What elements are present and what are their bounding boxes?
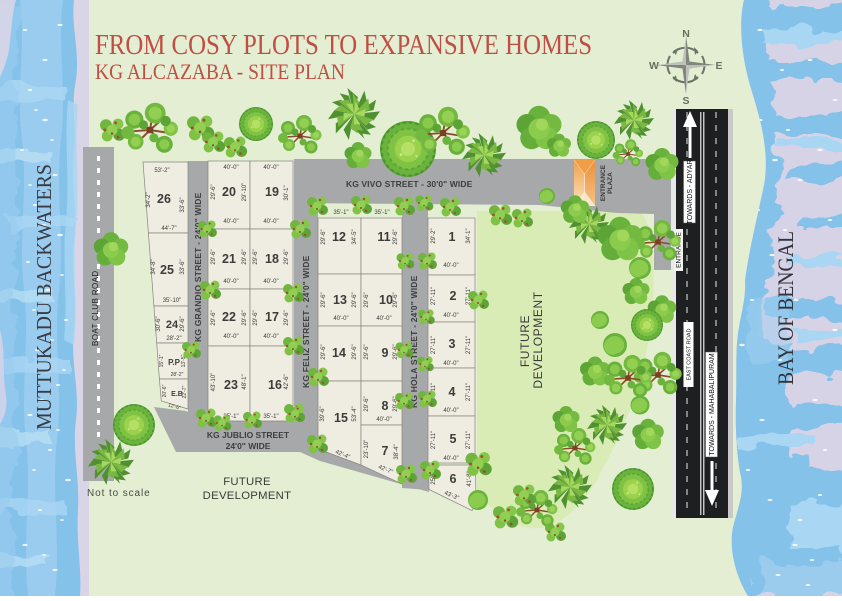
svg-text:15'-1": 15'-1"	[159, 354, 165, 367]
svg-text:P.P: P.P	[168, 358, 181, 367]
svg-text:21: 21	[222, 252, 236, 266]
svg-text:25: 25	[160, 263, 174, 277]
svg-text:44'-7": 44'-7"	[161, 226, 176, 232]
svg-text:40'-0": 40'-0"	[263, 334, 278, 340]
svg-text:29'-6": 29'-6"	[253, 310, 259, 325]
svg-text:40'-0": 40'-0"	[443, 361, 458, 367]
svg-text:2: 2	[450, 289, 457, 303]
svg-text:43'-10": 43'-10"	[211, 373, 217, 392]
svg-text:40'-0": 40'-0"	[443, 456, 458, 462]
svg-text:53'-4": 53'-4"	[352, 406, 358, 421]
svg-text:KG ALCAZABA - SITE PLAN: KG ALCAZABA - SITE PLAN	[95, 59, 345, 84]
svg-text:10: 10	[379, 293, 393, 307]
svg-text:KG HOLA STREET - 24'0" WIDE: KG HOLA STREET - 24'0" WIDE	[409, 275, 419, 408]
svg-text:8: 8	[382, 399, 389, 413]
svg-text:28'-2": 28'-2"	[171, 372, 184, 378]
svg-text:N: N	[682, 28, 690, 40]
svg-text:3: 3	[449, 337, 456, 351]
svg-text:FROM COSY PLOTS TO EXPANSIVE H: FROM COSY PLOTS TO EXPANSIVE HOMES	[95, 29, 592, 61]
svg-text:29'-6": 29'-6"	[284, 249, 290, 264]
svg-text:E: E	[715, 60, 722, 72]
svg-text:28'-2": 28'-2"	[166, 336, 181, 342]
svg-text:13: 13	[333, 293, 347, 307]
svg-text:29'-6": 29'-6"	[180, 316, 186, 331]
svg-text:7: 7	[382, 444, 389, 458]
svg-text:23: 23	[224, 378, 238, 392]
svg-text:27'-11": 27'-11"	[431, 336, 437, 354]
svg-text:29'-6": 29'-6"	[393, 292, 399, 307]
svg-text:29'-6": 29'-6"	[321, 229, 327, 244]
svg-text:1: 1	[449, 230, 456, 244]
svg-text:40'-0": 40'-0"	[376, 417, 391, 423]
svg-text:4: 4	[449, 385, 456, 399]
svg-text:29'-6": 29'-6"	[253, 249, 259, 264]
svg-text:35'-10": 35'-10"	[163, 298, 182, 304]
svg-text:ENTRANCE: ENTRANCE	[600, 164, 607, 201]
svg-text:12: 12	[332, 230, 346, 244]
svg-text:40'-0": 40'-0"	[443, 408, 458, 414]
svg-text:W: W	[649, 60, 659, 72]
svg-text:29'-6": 29'-6"	[364, 344, 370, 359]
svg-text:15: 15	[334, 411, 348, 425]
svg-text:35'-1": 35'-1"	[263, 414, 278, 420]
svg-text:30'-6": 30'-6"	[156, 316, 162, 331]
svg-text:20'-6": 20'-6"	[162, 384, 168, 397]
svg-text:40'-0": 40'-0"	[263, 219, 278, 225]
svg-text:29'-6": 29'-6"	[352, 344, 358, 359]
svg-text:34'-8": 34'-8"	[151, 259, 157, 274]
svg-text:35'-1": 35'-1"	[374, 210, 389, 216]
svg-text:5: 5	[450, 432, 457, 446]
svg-text:27'-11": 27'-11"	[466, 431, 472, 449]
svg-text:40'-0": 40'-0"	[443, 313, 458, 319]
svg-text:35'-1": 35'-1"	[333, 210, 348, 216]
svg-text:40'-0": 40'-0"	[223, 219, 238, 225]
svg-text:42'-6": 42'-6"	[284, 374, 290, 389]
svg-text:30'-1": 30'-1"	[284, 185, 290, 200]
svg-text:29'-6": 29'-6"	[364, 396, 370, 411]
svg-text:29'-6": 29'-6"	[211, 184, 217, 199]
svg-text:16: 16	[268, 378, 282, 392]
svg-text:29'-6": 29'-6"	[211, 310, 217, 325]
svg-text:29'-6": 29'-6"	[284, 310, 290, 325]
svg-text:27'-11": 27'-11"	[431, 287, 437, 305]
svg-text:23'-10": 23'-10"	[364, 440, 370, 459]
svg-text:29'-6": 29'-6"	[211, 249, 217, 264]
svg-text:FUTURE: FUTURE	[518, 315, 532, 367]
svg-text:34'-2": 34'-2"	[146, 192, 152, 207]
svg-text:40'-0": 40'-0"	[263, 165, 278, 171]
svg-text:40'-0": 40'-0"	[263, 279, 278, 285]
svg-text:MUTTUKADU BACKWATERS: MUTTUKADU BACKWATERS	[32, 164, 56, 430]
svg-text:29'-10": 29'-10"	[242, 183, 248, 202]
svg-text:39'-6": 39'-6"	[320, 406, 326, 421]
svg-text:18: 18	[265, 252, 279, 266]
svg-text:40'-0": 40'-0"	[443, 263, 458, 269]
svg-text:17: 17	[265, 310, 279, 324]
svg-text:29'-6": 29'-6"	[352, 292, 358, 307]
svg-text:TOWARDS - ADYAR: TOWARDS - ADYAR	[687, 160, 694, 225]
svg-text:EAST COAST ROAD: EAST COAST ROAD	[687, 328, 693, 380]
svg-text:14: 14	[332, 346, 346, 360]
svg-text:27'-11": 27'-11"	[466, 383, 472, 401]
svg-text:S: S	[682, 95, 689, 107]
svg-text:TOWARDS - MAHABALIPURAM: TOWARDS - MAHABALIPURAM	[709, 353, 716, 455]
svg-text:19: 19	[265, 185, 279, 199]
svg-text:Not to scale: Not to scale	[87, 488, 151, 499]
svg-text:KG JUBLIO STREET: KG JUBLIO STREET	[207, 430, 290, 440]
svg-text:KG VIVO STREET - 30'0" WIDE: KG VIVO STREET - 30'0" WIDE	[346, 179, 473, 189]
svg-text:20: 20	[222, 185, 236, 199]
svg-text:24: 24	[166, 319, 179, 331]
svg-text:11: 11	[377, 230, 390, 244]
svg-text:BOAT CLUB ROAD: BOAT CLUB ROAD	[91, 270, 100, 346]
svg-text:29'-6": 29'-6"	[364, 292, 370, 307]
svg-text:26: 26	[157, 192, 171, 206]
svg-text:29'-2": 29'-2"	[431, 228, 437, 243]
svg-text:33'-6": 33'-6"	[180, 259, 186, 274]
svg-text:40'-0": 40'-0"	[223, 165, 238, 171]
svg-text:38'-4": 38'-4"	[394, 444, 400, 459]
svg-text:40'-0": 40'-0"	[333, 316, 348, 322]
svg-text:29'-6": 29'-6"	[321, 344, 327, 359]
svg-text:9: 9	[382, 346, 389, 360]
svg-text:34'-5": 34'-5"	[352, 229, 358, 244]
svg-text:27'-11": 27'-11"	[466, 336, 472, 354]
svg-text:29'-6": 29'-6"	[242, 249, 248, 264]
svg-text:29'-6": 29'-6"	[321, 292, 327, 307]
svg-text:DEVELOPMENT: DEVELOPMENT	[203, 490, 292, 502]
svg-text:KG GRANDIO STREET - 24'0" WIDE: KG GRANDIO STREET - 24'0" WIDE	[193, 192, 203, 342]
svg-text:40'-0": 40'-0"	[376, 316, 391, 322]
svg-text:22: 22	[222, 310, 236, 324]
svg-text:48'-1": 48'-1"	[242, 374, 248, 389]
svg-text:40'-0": 40'-0"	[223, 279, 238, 285]
svg-text:DEVELOPMENT: DEVELOPMENT	[531, 291, 545, 388]
svg-text:29'-6": 29'-6"	[393, 229, 399, 244]
svg-text:KG FELIZ STREET - 24'0" WIDE: KG FELIZ STREET - 24'0" WIDE	[301, 255, 311, 388]
svg-text:22'-7": 22'-7"	[182, 385, 188, 398]
svg-text:6: 6	[450, 472, 457, 486]
svg-text:40'-0": 40'-0"	[223, 334, 238, 340]
svg-text:53'-2": 53'-2"	[154, 168, 169, 174]
svg-text:34'-1": 34'-1"	[466, 228, 472, 243]
svg-text:BAY OF BENGAL: BAY OF BENGAL	[773, 231, 798, 385]
svg-text:PLAZA: PLAZA	[607, 172, 614, 194]
svg-text:27'-11": 27'-11"	[431, 431, 437, 449]
svg-text:24'0" WIDE: 24'0" WIDE	[226, 441, 271, 451]
svg-text:FUTURE: FUTURE	[223, 476, 271, 488]
svg-text:29'-6": 29'-6"	[242, 310, 248, 325]
svg-text:33'-6": 33'-6"	[180, 197, 186, 212]
